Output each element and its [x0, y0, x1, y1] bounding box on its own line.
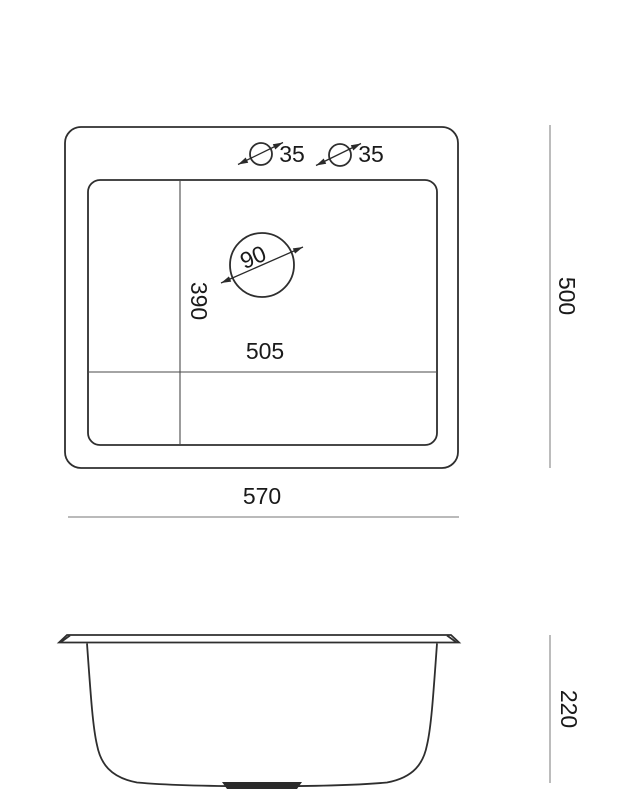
side-height-label: 220: [556, 690, 582, 728]
side-drain-fitting: [222, 782, 302, 789]
drain-diameter-label: 90: [236, 240, 270, 274]
drawing-svg: 35 35 90 390 505 570: [0, 0, 621, 800]
faucet-hole-2-circle: [329, 144, 351, 166]
technical-drawing-sink: 35 35 90 390 505 570: [0, 0, 621, 800]
top-view: 35 35 90 390 505: [65, 127, 458, 468]
faucet-hole-2: 35: [316, 141, 384, 167]
inner-depth-label: 390: [186, 282, 212, 320]
faucet-hole-2-diameter-arrow: [316, 144, 361, 166]
side-rim-outline: [59, 635, 459, 643]
faucet-hole-1-diameter-arrow: [238, 143, 283, 165]
overall-depth-dimension: 500: [550, 125, 580, 468]
sink-bowl-edge: [88, 180, 437, 445]
overall-width-dimension: 570: [68, 483, 459, 517]
faucet-hole-1: 35: [238, 141, 305, 167]
overall-width-label: 570: [243, 483, 281, 509]
overall-depth-label: 500: [554, 277, 580, 315]
side-height-dimension: 220: [550, 635, 582, 783]
side-view: [59, 635, 459, 789]
inner-width-label: 505: [246, 338, 284, 364]
drain: 90: [221, 233, 303, 297]
side-bowl-outline: [87, 644, 437, 787]
faucet-hole-1-label: 35: [279, 141, 305, 167]
faucet-hole-1-circle: [250, 143, 272, 165]
faucet-hole-2-label: 35: [358, 141, 384, 167]
